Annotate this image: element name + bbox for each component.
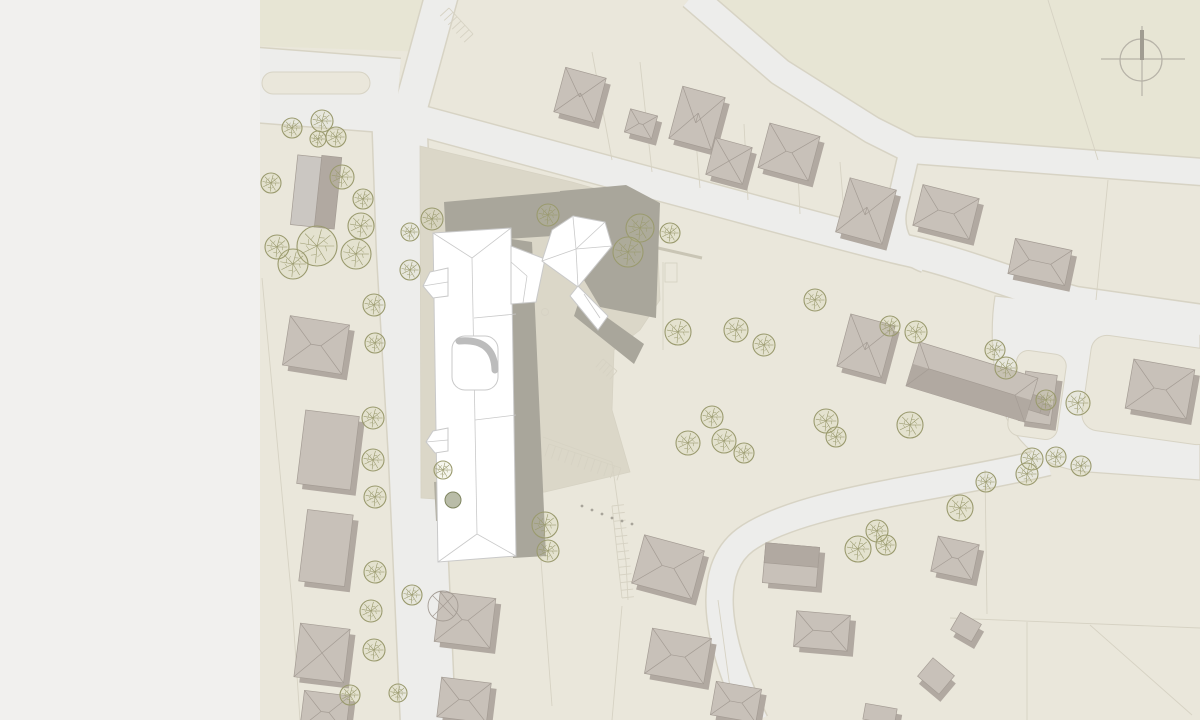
tree-symbol [400,260,420,280]
tree-symbol [532,512,558,538]
tree-symbol [401,223,419,241]
tree-symbol [341,239,371,269]
tree-symbol [363,294,385,316]
tree-symbol [1066,391,1090,415]
courtyard-tree [445,492,461,508]
bollard-dot [601,513,604,516]
tree-symbol [265,235,289,259]
tree-symbol [753,334,775,356]
tree-symbol [734,443,754,463]
tree-symbol [421,208,443,230]
map-viewport[interactable] [260,0,1200,720]
tree-symbol [340,685,360,705]
tree-symbol [804,289,826,311]
tree-symbol [363,639,385,661]
tree-symbol [660,223,680,243]
house [436,677,497,720]
tree-symbol [845,536,871,562]
tree-symbol [897,412,923,438]
sidebar-panel [0,0,260,720]
tree-symbol [905,321,927,343]
house [434,592,502,654]
house-roof [299,509,353,586]
house-roof [297,410,360,490]
tree-symbol [1046,447,1066,467]
tree-symbol [434,461,452,479]
house [282,316,356,381]
tree-symbol [876,535,896,555]
bollard-dot [611,517,614,520]
tree-symbol [360,600,382,622]
bollard-dot [591,509,594,512]
tree-symbol [947,495,973,521]
tree-symbol [364,486,386,508]
tree-symbol [362,449,384,471]
house [793,611,856,657]
tree-symbol [282,118,302,138]
tree-symbol [364,561,386,583]
tree-symbol [362,407,384,429]
site-plan-map[interactable] [260,0,1200,720]
tree-symbol [326,127,346,147]
tree-symbol [389,684,407,702]
tall-building [290,153,341,229]
site-plan-screenshot [0,0,1200,720]
house [293,623,356,688]
tree-symbol [537,540,559,562]
house [762,543,826,593]
tree-symbol [701,406,723,428]
bollard-dot [581,505,584,508]
tree-symbol [261,173,281,193]
traffic-island [262,72,370,94]
house-roof [437,677,492,720]
house [1124,359,1200,425]
tree-symbol [330,165,354,189]
tree-symbol [402,585,422,605]
bollard-dot [631,523,634,526]
roof-back-face [764,543,820,568]
bollard-dot [621,520,624,523]
tree-symbol [880,316,900,336]
tree-symbol [995,357,1017,379]
tree-symbol [348,213,374,239]
house [298,509,359,592]
tree-symbol [665,319,691,345]
field-parcel [260,0,434,52]
tree-symbol [976,472,996,492]
tree-symbol [1016,463,1038,485]
tree-symbol [985,340,1005,360]
tree-symbol [537,204,559,226]
tree-symbol [1036,390,1056,410]
tree-symbol [1071,456,1091,476]
tree-symbol [365,333,385,353]
tree-symbol [712,429,736,453]
tree-symbol [353,189,373,209]
house [296,410,365,496]
tree-symbol [724,318,748,342]
tree-symbol [826,427,846,447]
tree-symbol [613,237,643,267]
tree-symbol [310,131,326,147]
tree-symbol [676,431,700,455]
traffic-island-shape [262,72,370,94]
